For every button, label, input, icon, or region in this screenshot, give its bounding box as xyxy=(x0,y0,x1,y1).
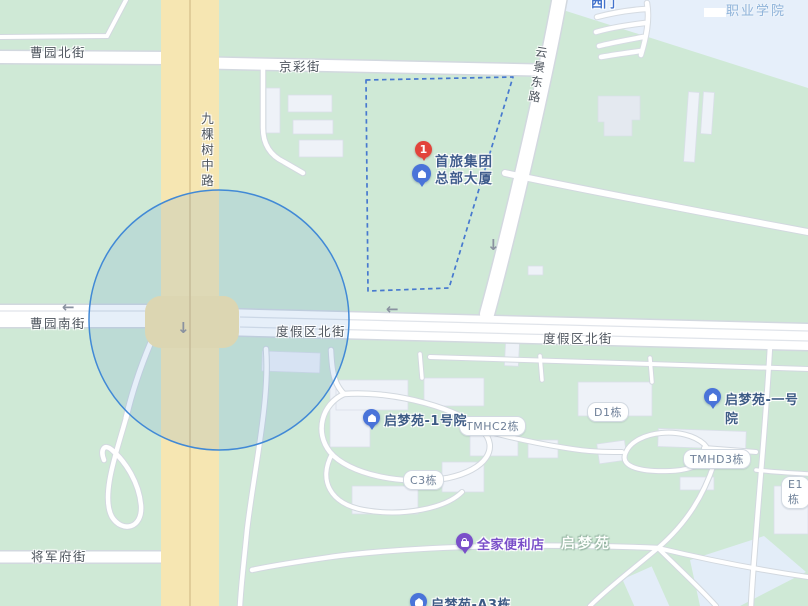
marker-title-line2: 总部大厦 xyxy=(435,171,493,188)
building-pill-c3: C3栋 xyxy=(403,470,444,490)
map-canvas[interactable]: 曹园北街 京彩街 九棵树中路 云景东路 曹园南街 度假区北街 度假区北街 将军府… xyxy=(0,0,808,606)
residence-pin-icon[interactable] xyxy=(363,409,380,426)
poi-label[interactable]: 启梦苑-1号院 xyxy=(384,410,467,429)
marker-number-badge[interactable]: 1 xyxy=(415,141,432,158)
marker-title[interactable]: 首旅集团 总部大厦 xyxy=(435,154,493,188)
accuracy-circle xyxy=(89,190,349,450)
building-pill-e1: E1栋 xyxy=(781,476,808,509)
poi-label[interactable]: 启梦苑-一号院 xyxy=(725,389,808,427)
map-base-layer xyxy=(0,0,808,606)
poi-qimengyuan-yard1-alt[interactable]: 启梦苑-一号院 xyxy=(704,388,808,427)
poi-familymart[interactable]: 全家便利店 xyxy=(456,533,545,553)
building-pill-tmhc2: TMHC2栋 xyxy=(459,416,526,436)
building-pin-icon[interactable] xyxy=(412,164,431,183)
poi-qimengyuan-a3[interactable]: 启梦苑-A3栋 xyxy=(410,593,511,606)
building-pill-d1: D1栋 xyxy=(587,402,629,422)
store-pin-icon[interactable] xyxy=(456,533,473,550)
poi-qimengyuan-yard1[interactable]: 启梦苑-1号院 xyxy=(363,409,467,429)
poi-label[interactable]: 全家便利店 xyxy=(477,534,545,553)
search-result-marker[interactable]: 1 首旅集团 总部大厦 xyxy=(412,141,532,197)
building-pill-tmhd3: TMHD3栋 xyxy=(683,449,751,469)
poi-label[interactable]: 启梦苑-A3栋 xyxy=(431,594,511,606)
marker-title-line1: 首旅集团 xyxy=(435,154,493,171)
residence-pin-icon[interactable] xyxy=(410,593,427,606)
residence-pin-icon[interactable] xyxy=(704,388,721,405)
